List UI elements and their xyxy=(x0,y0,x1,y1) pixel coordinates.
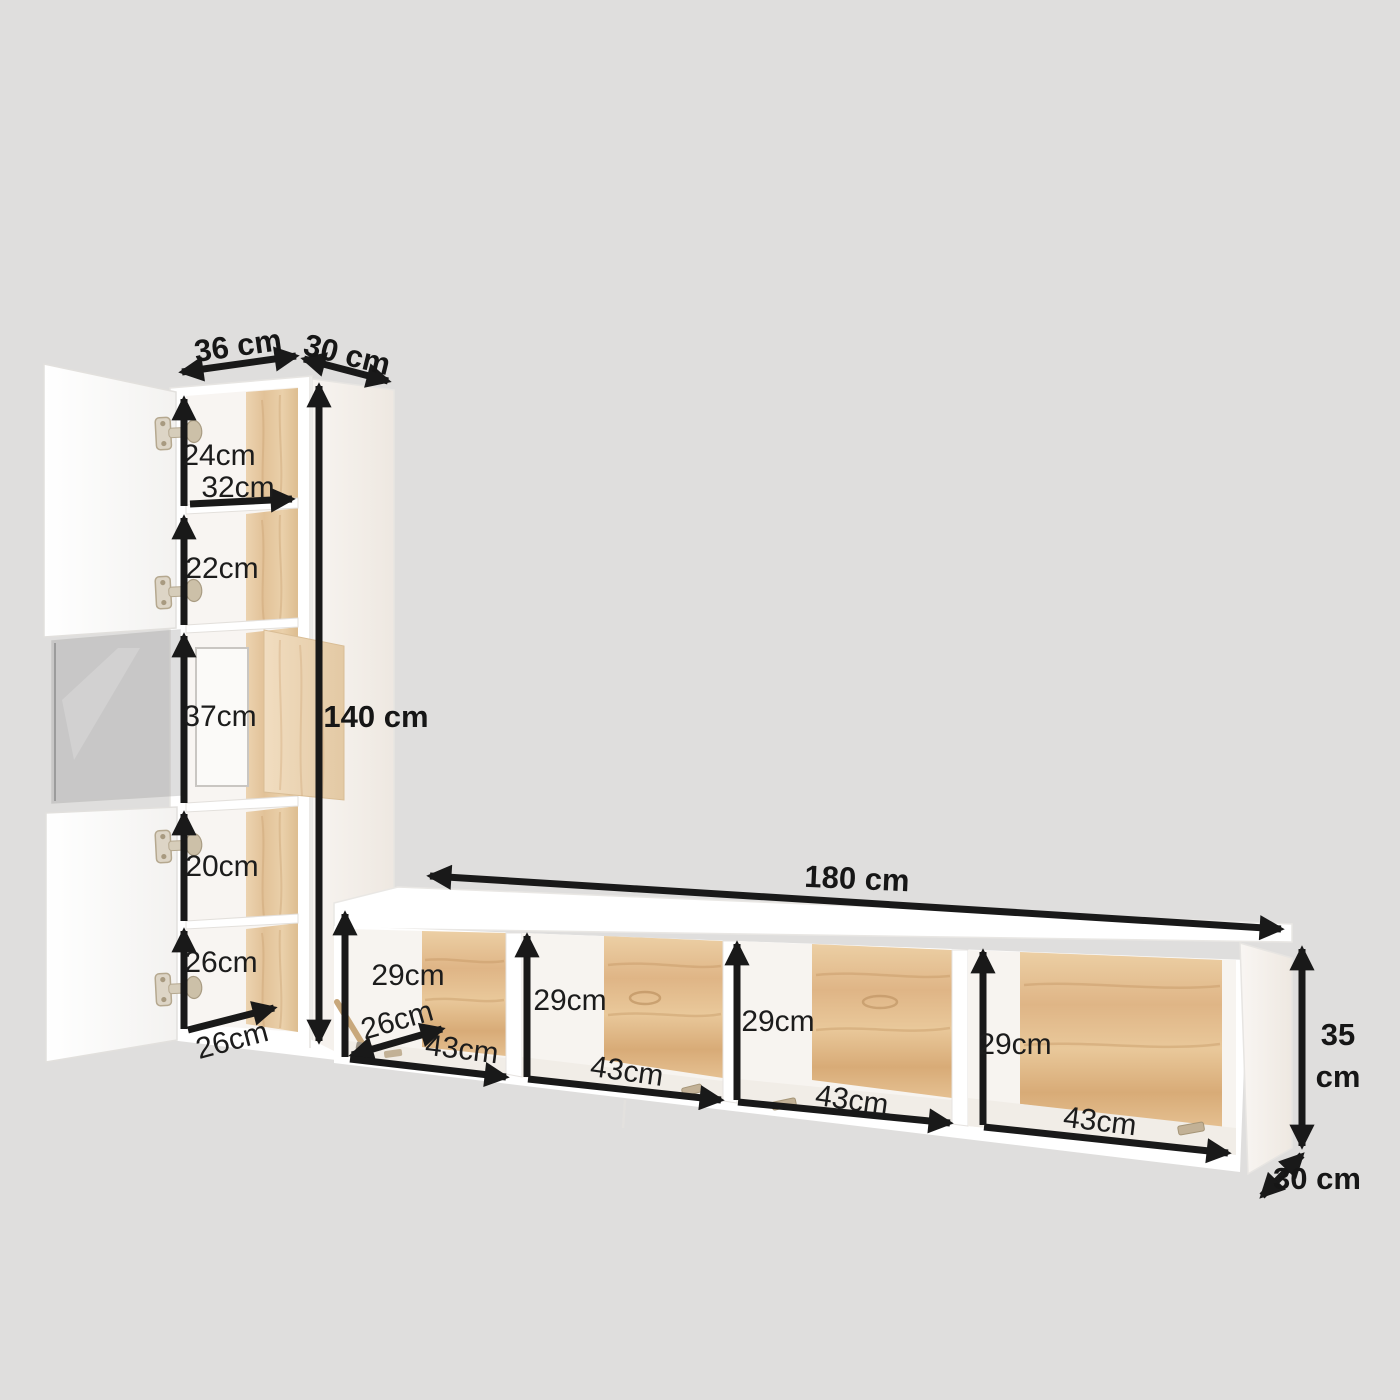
label-inner-width: 32cm xyxy=(201,471,274,504)
label-stand-c3-height: 29cm xyxy=(741,1005,814,1038)
furniture-dimension-diagram: 36 cm 30 cm 140 cm 24cm 32cm 22cm 37cm 2… xyxy=(0,0,1400,1400)
stand-divider xyxy=(506,933,522,1077)
glass-door xyxy=(52,630,180,803)
label-stand-depth: 30 cm xyxy=(1273,1161,1361,1196)
label-stand-height-unit: cm xyxy=(1316,1059,1361,1094)
label-compartment-2: 22cm xyxy=(185,552,258,585)
label-stand-height-value: 35 xyxy=(1321,1017,1355,1052)
stand-side-panel xyxy=(1240,943,1292,1174)
label-stand-c2-height: 29cm xyxy=(533,984,606,1017)
label-stand-c4-height: 29cm xyxy=(978,1028,1051,1061)
label-stand-c1-height: 29cm xyxy=(371,959,444,992)
label-compartment-4: 20cm xyxy=(185,850,258,883)
label-cabinet-height: 140 cm xyxy=(323,699,428,734)
label-compartment-5: 26cm xyxy=(184,946,257,979)
label-compartment-3: 37cm xyxy=(183,700,256,733)
diagram-canvas: 36 cm 30 cm 140 cm 24cm 32cm 22cm 37cm 2… xyxy=(0,0,1400,1400)
stand-divider xyxy=(952,950,968,1126)
label-stand-width: 180 cm xyxy=(804,859,911,899)
label-compartment-1: 24cm xyxy=(182,439,255,472)
